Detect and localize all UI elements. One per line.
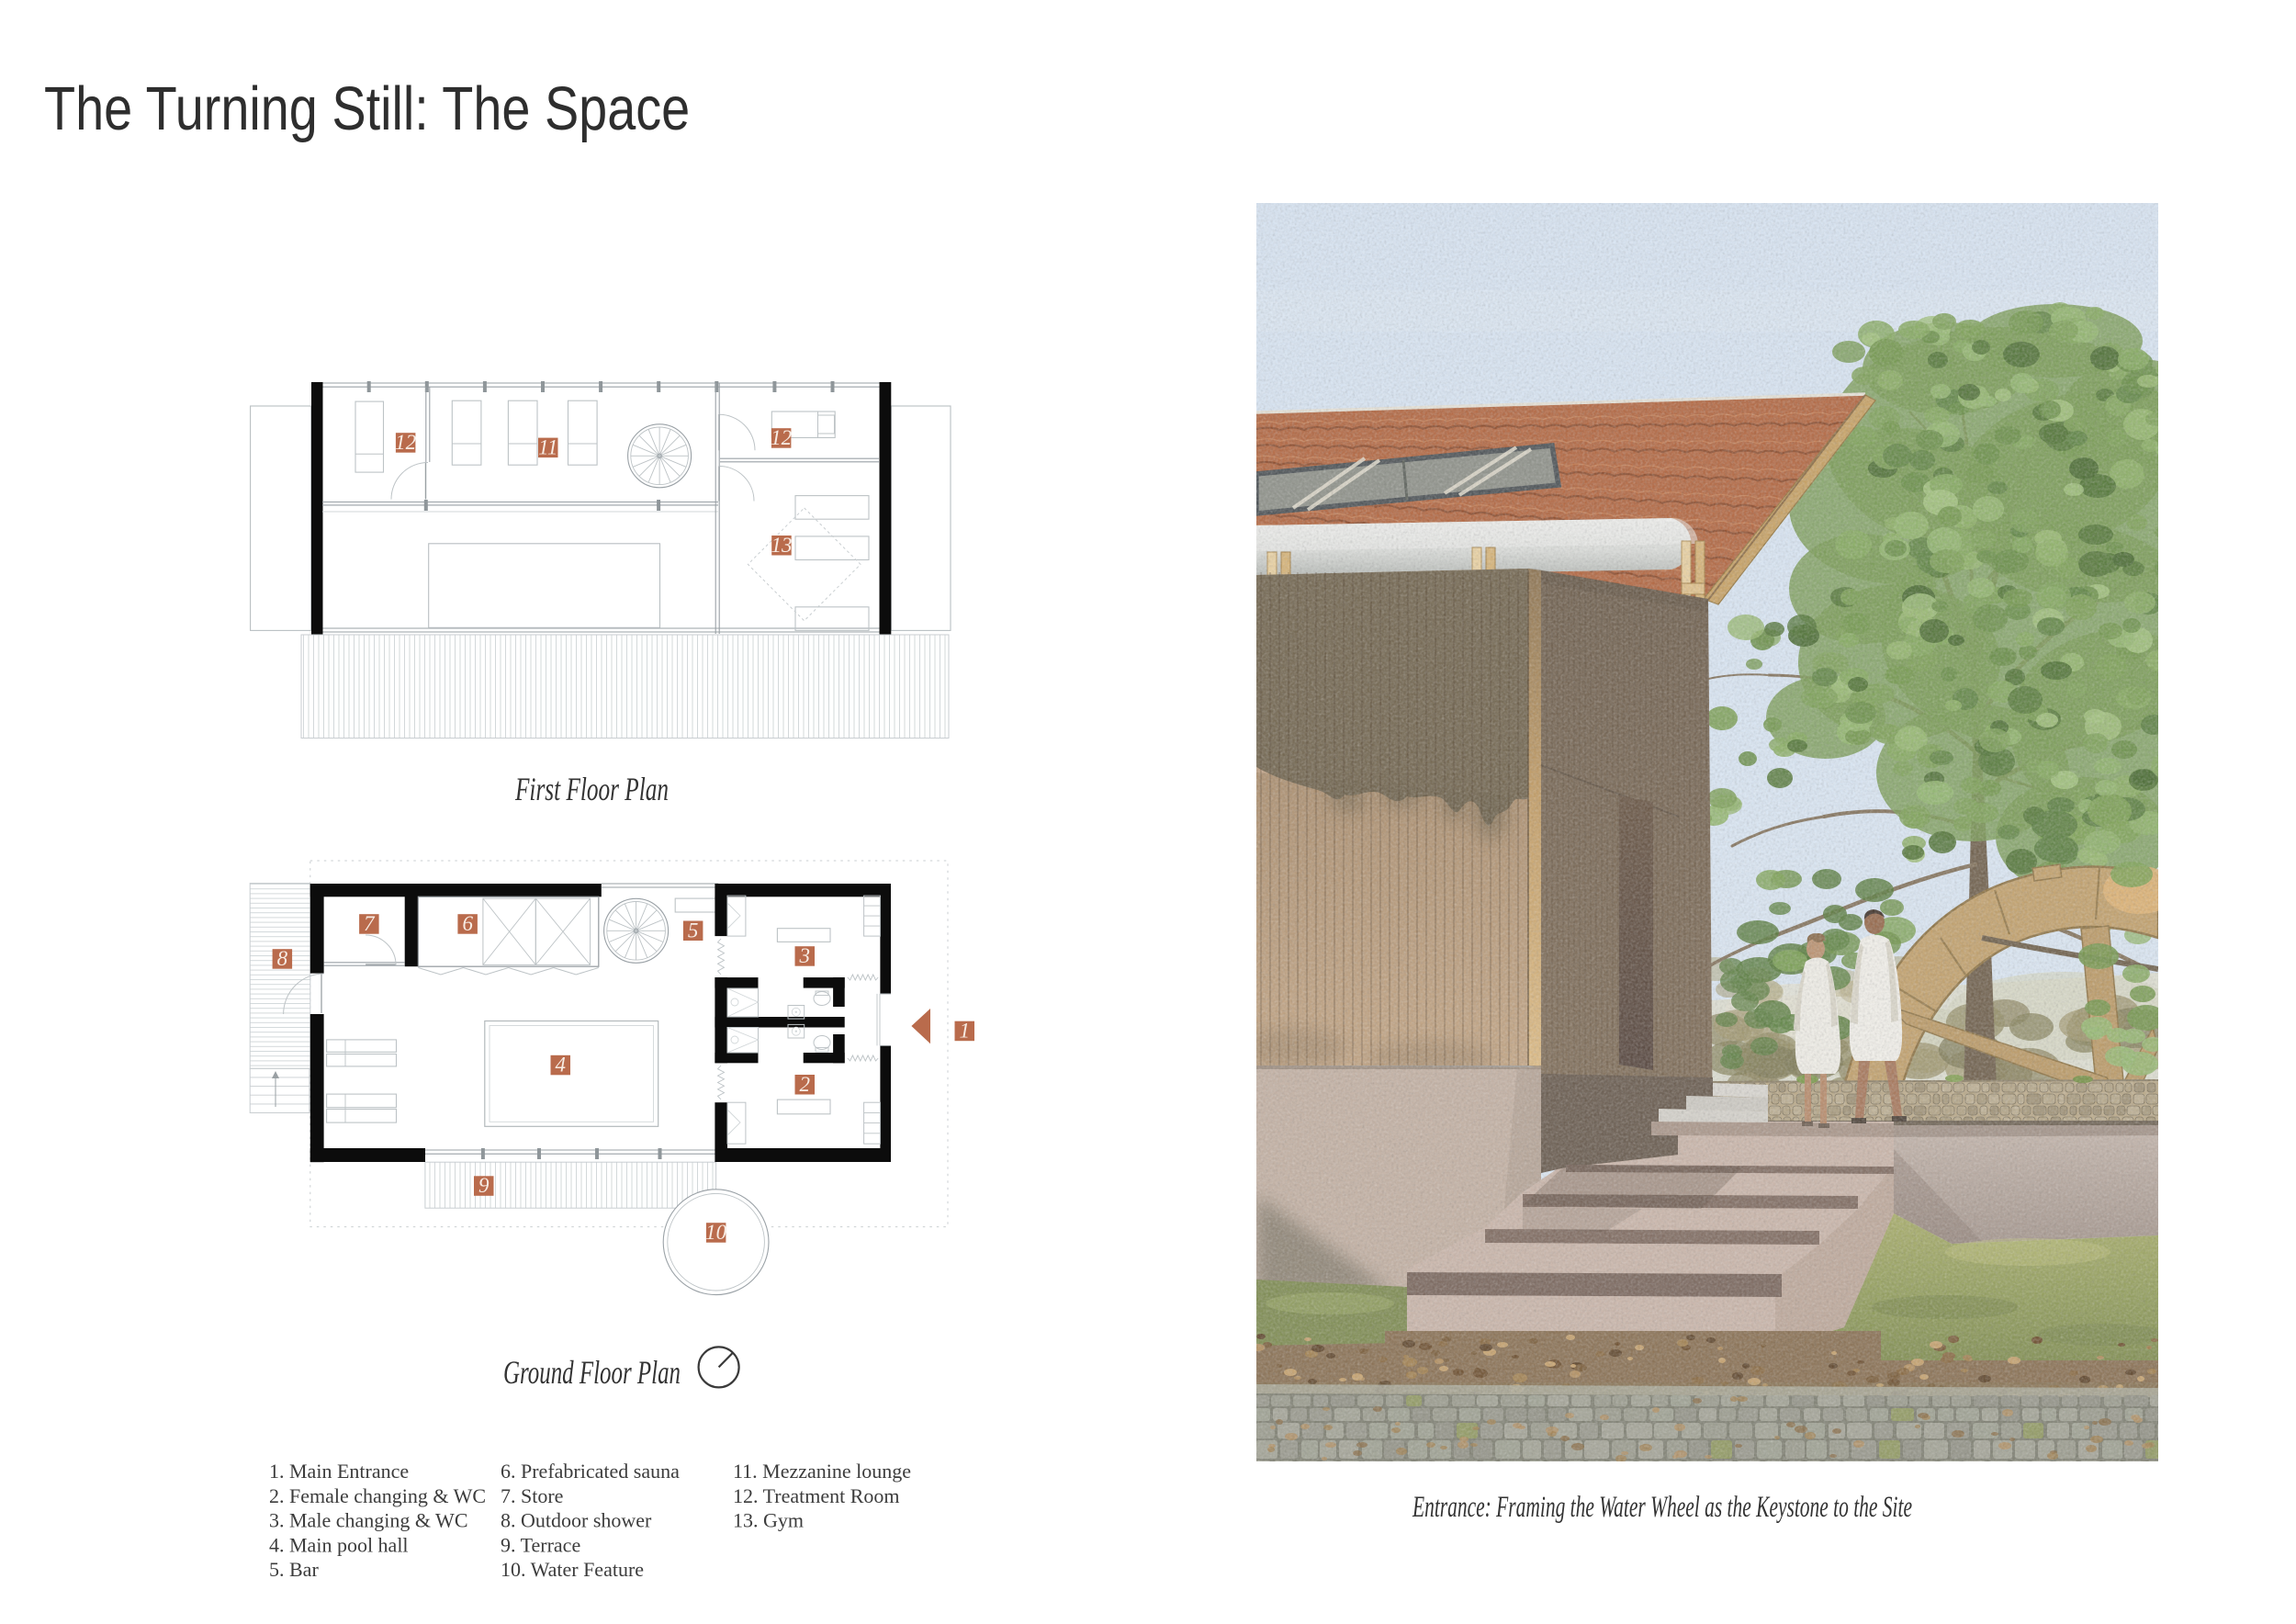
svg-text:7. Store: 7. Store [501, 1484, 563, 1507]
svg-text:8: 8 [277, 947, 288, 970]
svg-text:11. Mezzanine lounge: 11. Mezzanine lounge [733, 1460, 911, 1483]
svg-text:2. Female changing & WC: 2. Female changing & WC [269, 1484, 486, 1507]
svg-text:5: 5 [688, 919, 699, 942]
svg-text:5. Bar: 5. Bar [269, 1558, 319, 1581]
svg-text:First Floor Plan: First Floor Plan [514, 771, 669, 807]
svg-text:Entrance: Framing the Water Wh: Entrance: Framing the Water Wheel as the… [1412, 1491, 1912, 1524]
svg-text:7: 7 [364, 912, 376, 935]
svg-text:3. Male changing & WC: 3. Male changing & WC [269, 1509, 468, 1532]
svg-text:6. Prefabricated sauna: 6. Prefabricated sauna [501, 1460, 680, 1483]
svg-text:8. Outdoor shower: 8. Outdoor shower [501, 1509, 652, 1532]
svg-text:9: 9 [478, 1174, 490, 1197]
svg-text:Ground Floor Plan: Ground Floor Plan [503, 1354, 681, 1391]
svg-text:4: 4 [555, 1054, 566, 1077]
svg-text:13: 13 [771, 534, 793, 557]
svg-text:9. Terrace: 9. Terrace [501, 1533, 580, 1556]
svg-text:1. Main Entrance: 1. Main Entrance [269, 1460, 409, 1483]
svg-text:3: 3 [798, 944, 810, 967]
svg-text:12: 12 [395, 431, 416, 454]
svg-text:11: 11 [538, 436, 557, 459]
svg-text:2: 2 [799, 1073, 810, 1096]
svg-text:10: 10 [705, 1221, 727, 1244]
svg-text:4. Main pool hall: 4. Main pool hall [269, 1533, 409, 1556]
svg-text:10. Water Feature: 10. Water Feature [501, 1558, 644, 1581]
svg-text:1: 1 [960, 1020, 971, 1043]
svg-text:12. Treatment Room: 12. Treatment Room [733, 1484, 900, 1507]
svg-text:13. Gym: 13. Gym [733, 1509, 804, 1532]
svg-text:6: 6 [462, 912, 473, 935]
svg-text:12: 12 [771, 426, 792, 449]
